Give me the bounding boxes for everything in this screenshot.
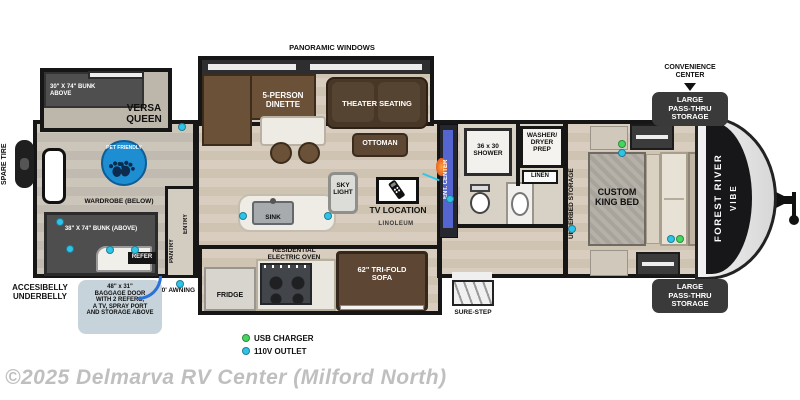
- convenience-center-label: CONVENIENCE CENTER: [648, 64, 732, 79]
- underbed-storage-label: UNDERBED STORAGE: [568, 156, 581, 252]
- outlet-110v-dot: [446, 195, 454, 203]
- outlet-110v-dot: [178, 123, 186, 131]
- sure-step: [452, 280, 494, 306]
- oven-label: RESIDENTIAL ELECTRIC OVEN: [256, 247, 332, 261]
- window-glass: [642, 262, 674, 266]
- usb-charger-dot: [676, 235, 684, 243]
- stove-knob-row: [264, 265, 308, 268]
- dinette-table: [260, 116, 326, 146]
- bunk-bottom-label: 38" X 74" BUNK (ABOVE): [48, 226, 154, 233]
- refer-label: REFER: [128, 254, 156, 261]
- spare-tire-hub: [20, 158, 29, 170]
- sure-step-label: SURE-STEP: [442, 309, 504, 316]
- dinette-stool: [270, 142, 292, 164]
- vanity-sink: [511, 192, 529, 216]
- outlet-110v-dot: [106, 246, 114, 254]
- usb-charger-dot: [618, 140, 626, 148]
- outlet-110v-dot: [324, 212, 332, 220]
- linoleum-label: LINOLEUM: [364, 221, 428, 228]
- pet-friendly-badge: PET FRIENDLY: [101, 140, 147, 186]
- sink-label: SINK: [256, 214, 290, 221]
- fridge-label: FRIDGE: [206, 292, 254, 300]
- pass-thru-storage-top: LARGE PASS-THRU STORAGE: [652, 92, 728, 126]
- washer-dryer-label: WASHER/ DRYER PREP: [520, 132, 564, 153]
- pet-friendly-label: PET FRIENDLY: [103, 146, 145, 152]
- bedroom-bench: [590, 250, 628, 276]
- outlet-110v-dot: [56, 218, 64, 226]
- down-arrow-icon: [684, 83, 696, 91]
- tv-remote-icon: [384, 179, 410, 206]
- outlet-110v-dot: [667, 235, 675, 243]
- bunk-window: [88, 71, 144, 79]
- legend-outlet-label: 110V OUTLET: [254, 347, 306, 356]
- bedroom-window: [636, 252, 680, 276]
- window-glass: [310, 64, 422, 70]
- fridge: [204, 267, 256, 311]
- toilet-tank: [470, 184, 490, 192]
- wall-bath-bottom: [458, 224, 566, 228]
- wall-bunkroom-kitchen: [193, 122, 199, 278]
- wardrobe-below-label: WARDROBE (BELOW): [84, 198, 154, 205]
- window-glass: [208, 64, 296, 70]
- dinette-sofa-arm: [202, 74, 252, 146]
- entry-label: ENTRY: [183, 204, 194, 244]
- awning-label: 20' AWNING: [158, 287, 206, 294]
- faucet: [270, 198, 276, 204]
- brand-forest-river: FOREST RIVER: [714, 130, 729, 266]
- pantry-label: PANTRY: [169, 228, 181, 274]
- versa-queen-label: VERSA QUEEN: [120, 103, 168, 125]
- outlet-110v-dot: [239, 212, 247, 220]
- window-glass: [340, 305, 424, 310]
- outlet-110v-dot: [618, 149, 626, 157]
- bed-runner: [646, 154, 660, 244]
- outlet-110v-dot: [131, 246, 139, 254]
- brand-vibe: VIBE: [730, 150, 742, 246]
- window-glass: [636, 135, 668, 139]
- rear-window: [42, 148, 66, 204]
- panoramic-windows-label: PANORAMIC WINDOWS: [262, 44, 402, 52]
- king-bed-label: CUSTOM KING BED: [589, 188, 645, 208]
- floorplan-image: SPARE TIRE 30" X 74" BUNK ABOVE VERSA QU…: [0, 0, 800, 400]
- outlet-110v-legend-dot: [242, 347, 250, 355]
- spare-tire-label: SPARE TIRE: [1, 134, 14, 194]
- theater-seating-label: THEATER SEATING: [328, 100, 426, 108]
- outlet-110v-dot: [568, 225, 576, 233]
- bed-pillows: [660, 152, 688, 246]
- outlet-110v-dot: [176, 280, 184, 288]
- stove: [260, 263, 312, 305]
- bunk-top-label: 30" X 74" BUNK ABOVE: [50, 84, 140, 97]
- tv-location-label: TV LOCATION: [358, 206, 438, 215]
- paw-prints-icon: [107, 154, 143, 187]
- entry-door-opening: [452, 272, 492, 280]
- shower-label: 36 x 30 SHOWER: [464, 143, 512, 157]
- sofa-label: 62" TRI-FOLD SOFA: [346, 266, 418, 283]
- linen-label: LINEN: [522, 173, 558, 180]
- copyright-watermark: ©2025 Delmarva RV Center (Milford North): [5, 366, 447, 390]
- underbelly-label: ACCESIBELLY UNDERBELLY: [6, 284, 74, 302]
- dinette-stool: [298, 142, 320, 164]
- outlet-110v-dot: [66, 245, 74, 253]
- pillow-divider: [664, 198, 684, 200]
- pass-thru-storage-bottom: LARGE PASS-THRU STORAGE: [652, 279, 728, 313]
- ent-center-label: ENT. CENTER: [443, 132, 454, 226]
- sink: [252, 201, 294, 225]
- skylight-label: SKY LIGHT: [328, 182, 358, 196]
- dinette-label: 5-PERSON DINETTE: [252, 92, 314, 110]
- ottoman-label: OTTOMAN: [352, 140, 408, 148]
- legend-outlet: 110V OUTLET: [242, 338, 306, 357]
- bedroom-window: [630, 124, 674, 150]
- toilet: [470, 192, 490, 214]
- floorplan: SPARE TIRE 30" X 74" BUNK ABOVE VERSA QU…: [0, 0, 800, 360]
